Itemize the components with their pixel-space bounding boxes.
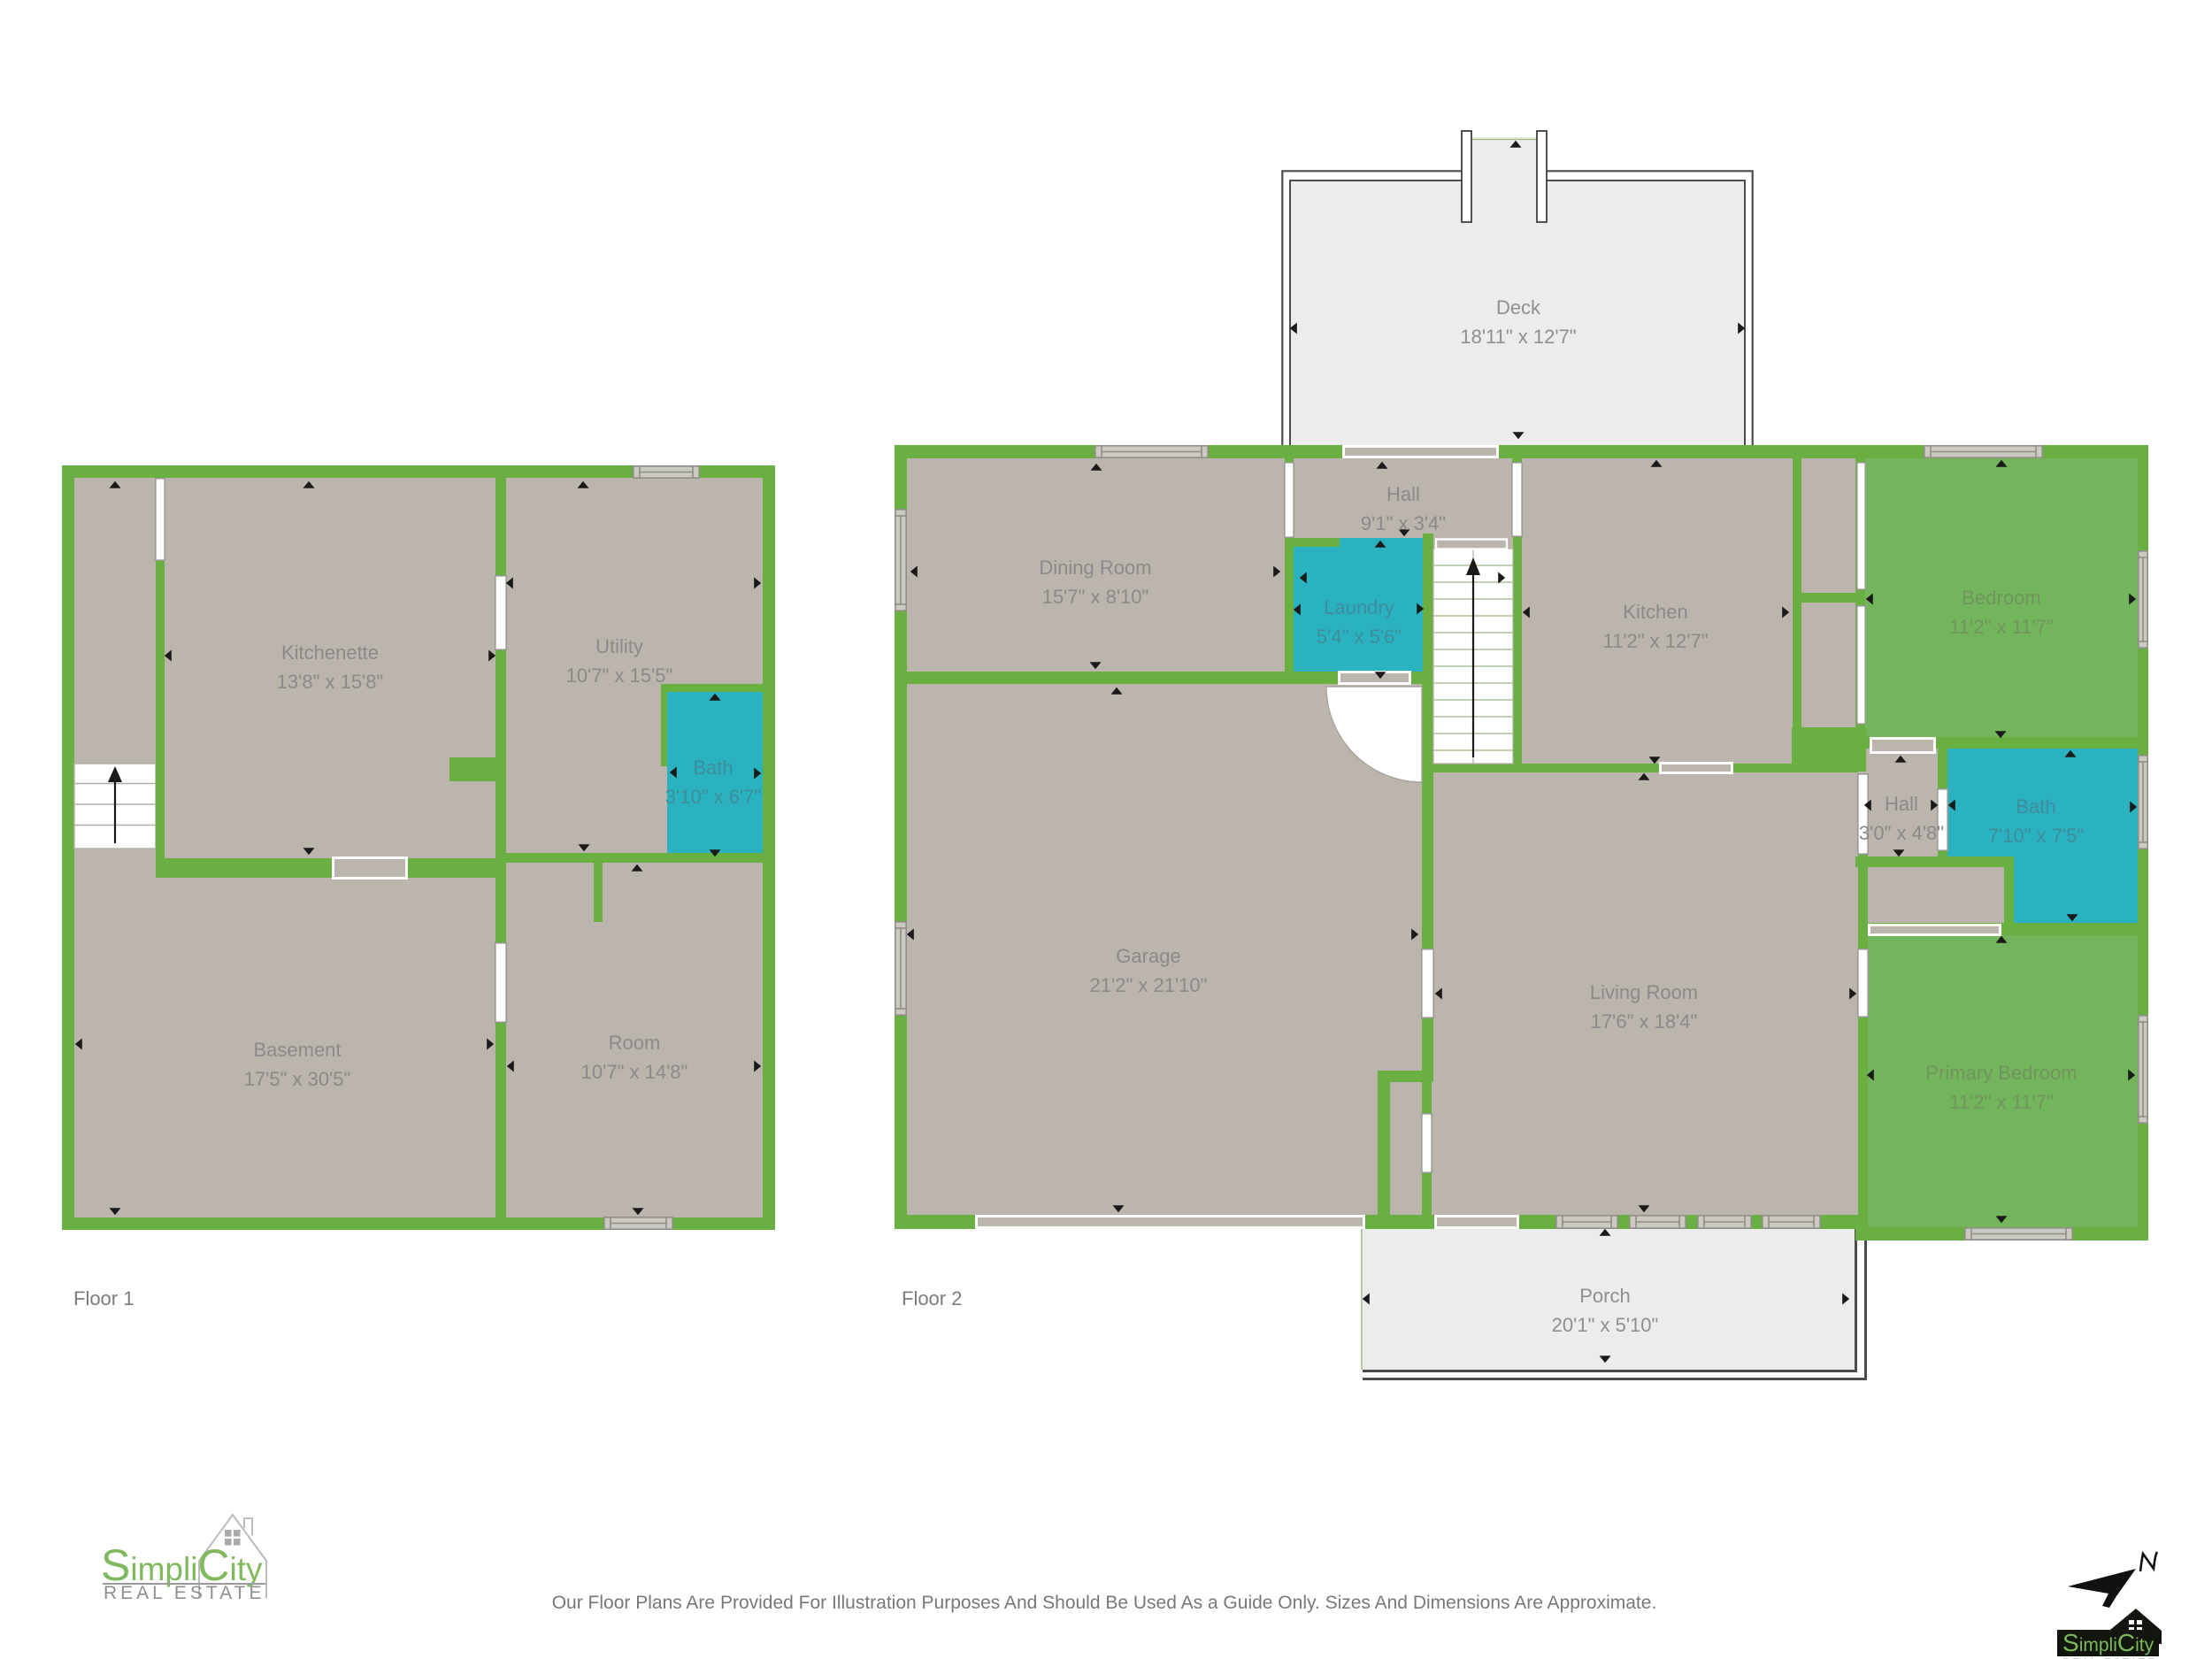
svg-text:Basement: Basement — [253, 1039, 341, 1061]
svg-text:Kitchen: Kitchen — [1623, 601, 1687, 623]
svg-text:Living Room: Living Room — [1590, 981, 1698, 1003]
svg-text:7'10" x 7'5": 7'10" x 7'5" — [1988, 825, 2084, 847]
svg-text:Hall: Hall — [1386, 483, 1420, 505]
svg-text:13'8" x 15'8": 13'8" x 15'8" — [277, 671, 384, 693]
svg-text:Utility: Utility — [595, 635, 643, 657]
svg-text:17'6" x 18'4": 17'6" x 18'4" — [1591, 1010, 1698, 1033]
svg-text:5'4" x 5'6": 5'4" x 5'6" — [1317, 626, 1402, 648]
svg-text:Deck: Deck — [1496, 296, 1541, 319]
svg-text:21'2" x 21'10": 21'2" x 21'10" — [1090, 974, 1208, 996]
svg-text:Bath: Bath — [693, 757, 733, 779]
svg-text:Floor 2: Floor 2 — [902, 1287, 962, 1310]
svg-text:Primary Bedroom: Primary Bedroom — [1925, 1062, 2077, 1084]
svg-text:15'7" x 8'10": 15'7" x 8'10" — [1042, 586, 1149, 608]
svg-text:Hall: Hall — [1885, 793, 1918, 815]
svg-text:Bath: Bath — [2016, 795, 2055, 818]
svg-text:20'1" x 5'10": 20'1" x 5'10" — [1552, 1314, 1659, 1336]
svg-text:Porch: Porch — [1579, 1285, 1630, 1307]
svg-text:17'5" x 30'5": 17'5" x 30'5" — [244, 1068, 351, 1090]
svg-text:Room: Room — [609, 1032, 661, 1054]
svg-text:Garage: Garage — [1116, 945, 1180, 967]
svg-text:Kitchenette: Kitchenette — [281, 641, 379, 664]
svg-text:18'11" x 12'7": 18'11" x 12'7" — [1460, 326, 1576, 348]
svg-text:Floor 1: Floor 1 — [73, 1287, 134, 1310]
svg-text:9'1" x 3'4": 9'1" x 3'4" — [1361, 512, 1446, 534]
svg-text:3'0" x 4'8": 3'0" x 4'8" — [1859, 822, 1944, 844]
svg-text:Our Floor Plans Are Provided F: Our Floor Plans Are Provided For Illustr… — [552, 1593, 1657, 1613]
svg-text:REAL ESTATE: REAL ESTATE — [104, 1583, 265, 1603]
svg-text:Dining Room: Dining Room — [1039, 557, 1151, 579]
svg-text:11'2" x 11'7": 11'2" x 11'7" — [1949, 616, 2053, 638]
svg-text:3'10" x 6'7": 3'10" x 6'7" — [665, 786, 761, 808]
svg-text:Bedroom: Bedroom — [1962, 587, 2040, 609]
svg-text:11'2" x 12'7": 11'2" x 12'7" — [1602, 630, 1708, 652]
svg-text:10'7" x 15'5": 10'7" x 15'5" — [566, 664, 673, 687]
svg-text:11'2" x 11'7": 11'2" x 11'7" — [1949, 1091, 2053, 1113]
svg-text:Laundry: Laundry — [1324, 596, 1394, 618]
svg-text:10'7" x 14'8": 10'7" x 14'8" — [581, 1061, 688, 1083]
